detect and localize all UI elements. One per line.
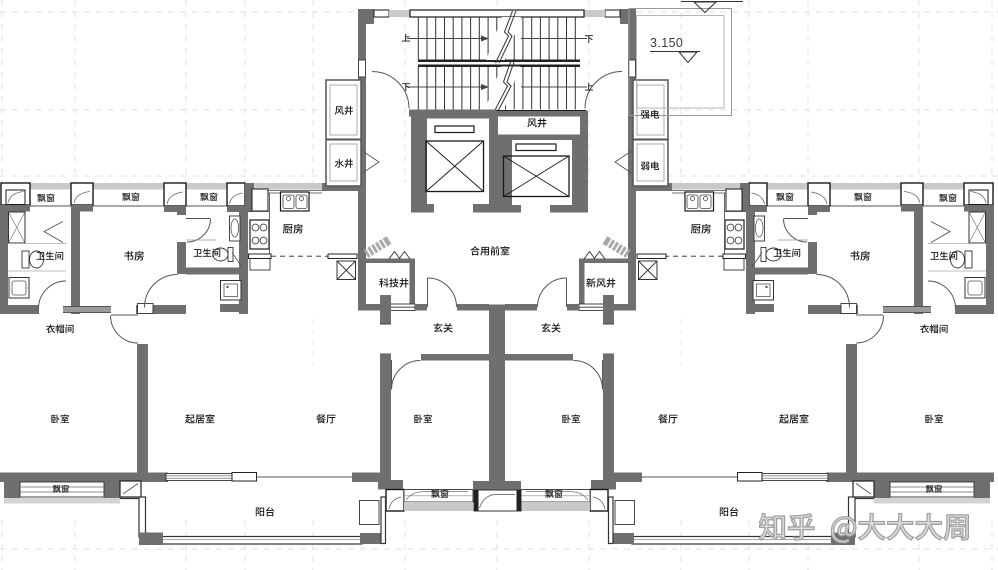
svg-text:3.150: 3.150 — [650, 36, 683, 50]
